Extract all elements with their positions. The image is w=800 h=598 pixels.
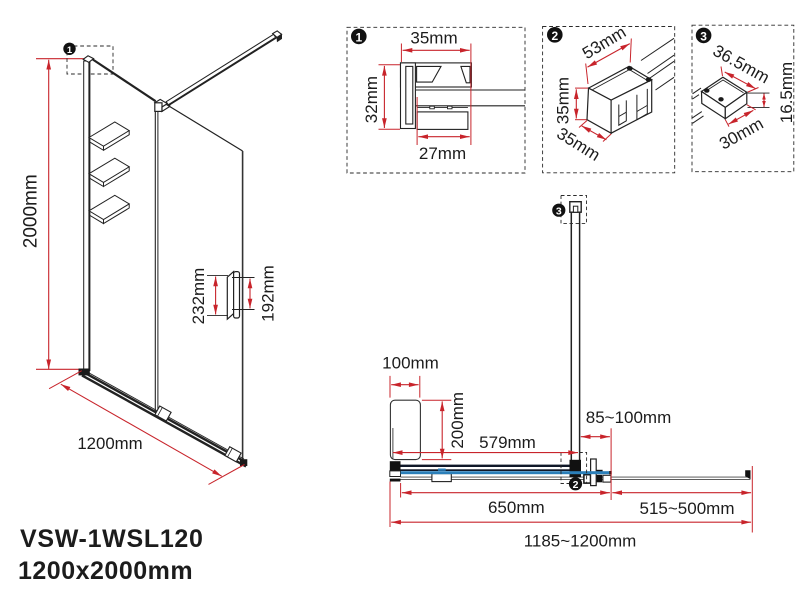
svg-text:35mm: 35mm	[554, 77, 573, 124]
svg-text:1200mm: 1200mm	[77, 434, 142, 453]
svg-text:3: 3	[700, 30, 707, 44]
svg-text:27mm: 27mm	[419, 144, 466, 163]
svg-text:35mm: 35mm	[410, 29, 457, 48]
svg-text:1: 1	[355, 31, 362, 45]
svg-text:1185~1200mm: 1185~1200mm	[524, 532, 637, 551]
svg-text:2: 2	[573, 479, 579, 491]
svg-text:579mm: 579mm	[479, 433, 536, 452]
svg-text:1: 1	[67, 45, 73, 56]
svg-text:VSW-1WSL120: VSW-1WSL120	[20, 525, 204, 553]
svg-text:53mm: 53mm	[579, 22, 629, 63]
svg-text:200mm: 200mm	[448, 392, 467, 449]
svg-text:100mm: 100mm	[382, 354, 439, 373]
svg-text:35mm: 35mm	[553, 124, 603, 165]
svg-text:3: 3	[556, 206, 562, 218]
svg-text:1200x2000mm: 1200x2000mm	[18, 557, 193, 585]
svg-text:16.5mm: 16.5mm	[777, 62, 796, 123]
svg-text:650mm: 650mm	[488, 498, 545, 517]
svg-text:85~100mm: 85~100mm	[586, 408, 672, 427]
svg-text:2000mm: 2000mm	[21, 174, 42, 248]
svg-text:32mm: 32mm	[362, 76, 381, 123]
svg-text:232mm: 232mm	[189, 268, 208, 325]
svg-text:192mm: 192mm	[259, 265, 278, 322]
svg-text:2: 2	[551, 29, 558, 43]
svg-text:515~500mm: 515~500mm	[640, 499, 735, 518]
svg-text:30mm: 30mm	[716, 114, 767, 154]
